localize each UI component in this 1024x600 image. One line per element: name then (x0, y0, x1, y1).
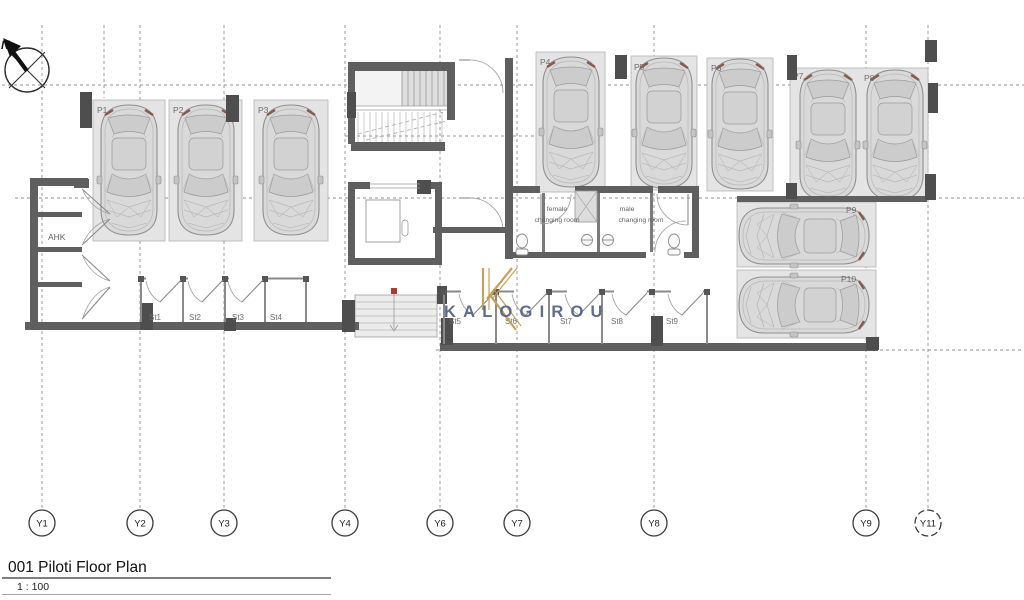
counterweight (402, 220, 408, 236)
parking-space-p7-p8: P7 P8 (790, 68, 928, 200)
storage-label: St2 (189, 313, 202, 322)
grid-bubble-y8: Y8 (641, 510, 667, 536)
grid-bubble-y11: Y11 (915, 510, 941, 536)
storage-doors (146, 280, 263, 302)
grid-bubble-y3: Y3 (211, 510, 237, 536)
room-label-female-changing: female (547, 206, 568, 213)
car-top-view-icon (796, 70, 860, 200)
parking-space-p9: P9 (737, 202, 876, 268)
storage-rooms-st1-st4: St1 St2 St3 St4 (138, 276, 309, 322)
north-label: N (1, 38, 10, 52)
parking-label: P8 (864, 73, 875, 83)
changing-rooms: female changing room male changing room (507, 186, 699, 258)
parking-label: P1 (97, 105, 108, 115)
grid-bubbles: Y1 Y2 Y3 Y4 Y6 Y7 Y8 Y9 (29, 510, 941, 536)
toilet-icon (516, 234, 528, 255)
grid-bubble-y6: Y6 (427, 510, 453, 536)
parking-label: P6 (711, 63, 722, 73)
parking-space-p5: P5 (631, 56, 697, 190)
grid-bubble-y7: Y7 (504, 510, 530, 536)
brand-watermark: KALOGIROU (444, 268, 610, 330)
grid-label: Y11 (920, 519, 936, 530)
ramp-marker (391, 288, 397, 294)
car-top-view-icon (97, 105, 161, 235)
parking-label: P3 (258, 105, 269, 115)
view-scale: 1 : 100 (17, 581, 49, 593)
storage-label: St3 (232, 313, 245, 322)
title-block: 001 Piloti Floor Plan 1 : 100 (2, 559, 331, 595)
parking-label: P4 (540, 57, 551, 67)
room-label-female-changing-2: changing room (535, 217, 580, 224)
car-top-view-icon (708, 59, 772, 189)
grid-bubble-y4: Y4 (332, 510, 358, 536)
grid-bubble-y9: Y9 (853, 510, 879, 536)
view-title: 001 Piloti Floor Plan (8, 559, 147, 576)
grid-label: Y3 (218, 519, 230, 530)
car-top-view-icon (632, 58, 696, 188)
parking-space-p1: P1 (93, 100, 165, 241)
elevator-car (366, 200, 400, 242)
grid-label: Y1 (36, 519, 48, 530)
grid-label: Y6 (434, 519, 446, 530)
entrance-ramp (355, 288, 437, 337)
grid-label: Y9 (860, 519, 872, 530)
room-label-ahk: AHK (48, 232, 66, 242)
parking-space-p3: P3 (254, 100, 328, 241)
grid-label: Y2 (134, 519, 146, 530)
parking-space-p4: P4 (536, 52, 605, 192)
storage-label: St8 (611, 317, 624, 326)
room-label-male-changing: male (620, 206, 635, 213)
brand-wordmark: KALOGIROU (444, 303, 610, 321)
parking-space-p6: P6 (707, 58, 773, 191)
toilet-icon (668, 234, 680, 255)
parking-label: P10 (841, 274, 856, 284)
parking-label: P5 (634, 62, 645, 72)
storage-label: St9 (666, 317, 679, 326)
room-label-male-changing-2: changing room (619, 217, 664, 224)
grid-label: Y7 (511, 519, 523, 530)
floor-plan-drawing: N P1 P2 P3 P4 P5 (0, 0, 1024, 595)
elevator (348, 180, 503, 265)
parking-label: P2 (173, 105, 184, 115)
grid-bubble-y1: Y1 (29, 510, 55, 536)
car-top-view-icon (539, 57, 603, 187)
grid-label: Y8 (648, 519, 660, 530)
storage-label: St1 (149, 313, 162, 322)
car-top-view-icon (863, 70, 927, 200)
grid-label: Y4 (339, 519, 351, 530)
north-arrow: N (1, 38, 49, 92)
storage-label: St4 (270, 313, 283, 322)
parking-label: P9 (846, 205, 857, 215)
staircase (347, 60, 503, 151)
car-top-view-icon (259, 105, 323, 235)
car-top-view-icon (174, 105, 238, 235)
grid-bubble-y2: Y2 (127, 510, 153, 536)
parking-space-p10: P10 (737, 270, 876, 338)
